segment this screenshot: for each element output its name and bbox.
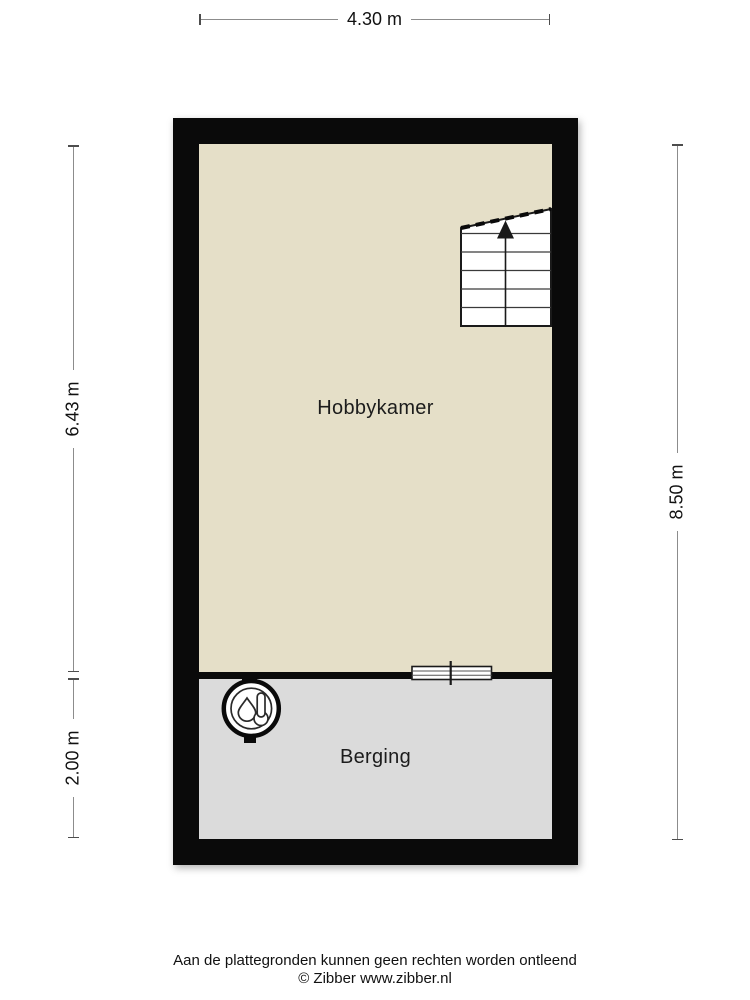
dimension-left-upper-label: 6.43 m bbox=[63, 381, 84, 436]
room-label-berging: Berging bbox=[199, 745, 552, 769]
dimension-label-box: 6.43 m bbox=[66, 370, 80, 448]
dimension-label-box: 8.50 m bbox=[670, 453, 684, 531]
dimension-top-width-label: 4.30 m bbox=[338, 9, 411, 30]
dimension-top-width: 4.30 m bbox=[199, 9, 550, 29]
dimension-left-lower-label: 2.00 m bbox=[63, 730, 84, 785]
dimension-right: 8.50 m bbox=[670, 144, 684, 840]
floorplan-page: 4.30 m 6.43 m 2.00 m 8.50 m bbox=[0, 0, 750, 1000]
footer-copyright: © Zibber www.zibber.nl bbox=[0, 970, 750, 988]
dimension-tick bbox=[68, 671, 79, 673]
dimension-line bbox=[411, 19, 548, 20]
dimension-tick bbox=[672, 839, 683, 841]
stairs-up-arrow-icon bbox=[461, 209, 551, 326]
dimension-tick bbox=[549, 14, 551, 25]
footer-disclaimer: Aan de plattegronden kunnen geen rechten… bbox=[0, 952, 750, 970]
dimension-line bbox=[677, 531, 678, 839]
dimension-line bbox=[73, 797, 74, 837]
dimension-left-lower: 2.00 m bbox=[66, 678, 80, 838]
dimension-line bbox=[201, 19, 338, 20]
dimension-line bbox=[73, 680, 74, 720]
dimension-line bbox=[677, 146, 678, 454]
boiler-thermometer-stem bbox=[257, 693, 265, 717]
dimension-tick bbox=[68, 837, 79, 839]
dimension-left-upper: 6.43 m bbox=[66, 145, 80, 672]
dimension-line bbox=[73, 147, 74, 370]
dimension-right-label: 8.50 m bbox=[667, 464, 688, 519]
dimension-label-box: 2.00 m bbox=[66, 719, 80, 797]
room-label-hobbykamer: Hobbykamer bbox=[199, 396, 552, 420]
dimension-line bbox=[73, 448, 74, 671]
footer: Aan de plattegronden kunnen geen rechten… bbox=[0, 952, 750, 988]
